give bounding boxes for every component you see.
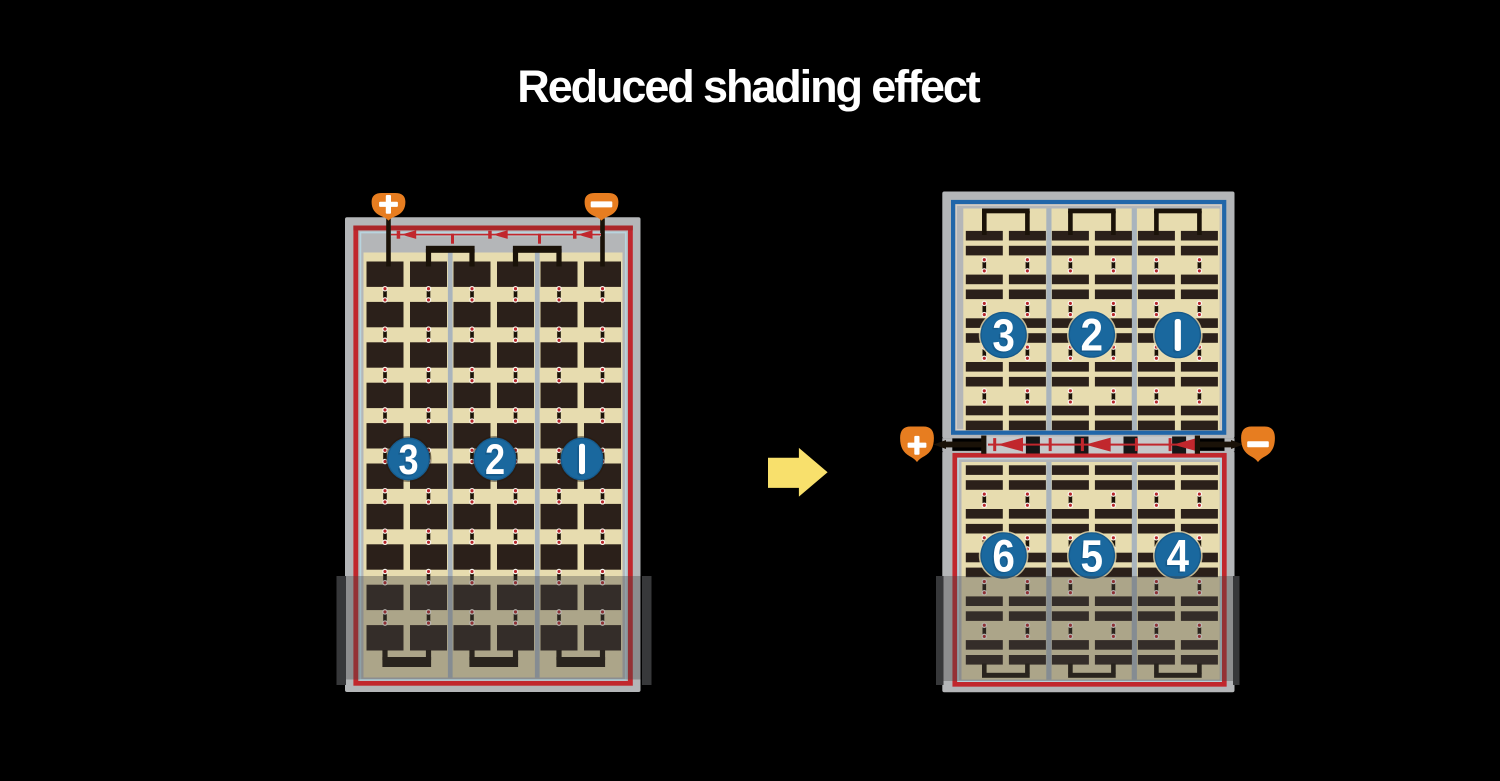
svg-text:5: 5 <box>1081 531 1104 581</box>
svg-text:6: 6 <box>992 531 1015 581</box>
svg-text:2: 2 <box>485 436 505 484</box>
svg-text:4: 4 <box>1167 531 1190 581</box>
svg-text:2: 2 <box>1081 310 1104 360</box>
svg-text:3: 3 <box>398 436 418 484</box>
svg-text:3: 3 <box>992 311 1015 361</box>
svg-text:Reduced shading effect: Reduced shading effect <box>517 61 981 112</box>
